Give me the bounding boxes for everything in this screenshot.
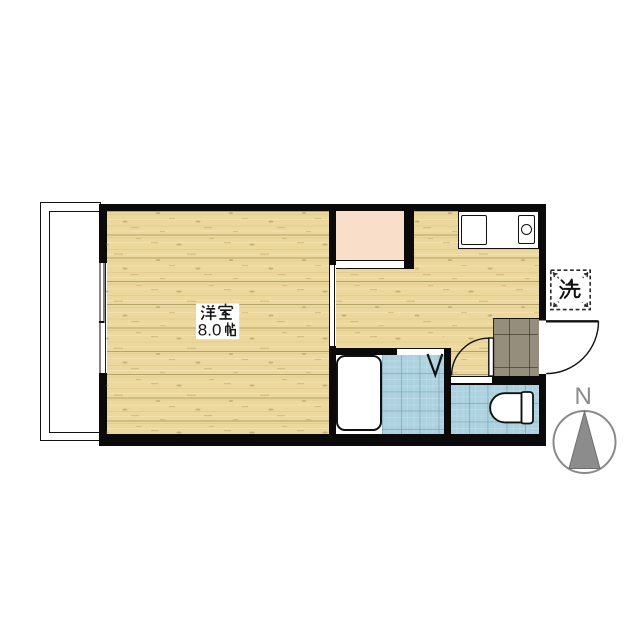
svg-text:8.0: 8.0 bbox=[198, 321, 222, 340]
svg-text:N: N bbox=[575, 383, 592, 410]
